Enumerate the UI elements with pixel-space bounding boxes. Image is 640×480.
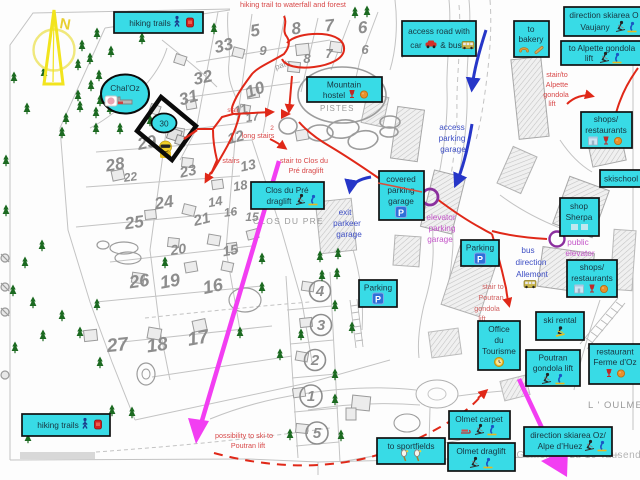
svg-text:stair: stair [227, 108, 238, 114]
svg-text:2: 2 [310, 352, 320, 369]
svg-text:26: 26 [127, 270, 152, 293]
svg-text:direction skiarea Oz/: direction skiarea Oz/ [530, 430, 606, 440]
svg-text:24: 24 [152, 191, 175, 213]
svg-text:restaurants: restaurants [585, 125, 627, 135]
svg-text:Parking: Parking [364, 283, 393, 293]
svg-text:4: 4 [315, 283, 325, 300]
svg-text:hiking trails: hiking trails [37, 420, 79, 430]
svg-text:gondola lift: gondola lift [533, 363, 574, 373]
svg-text:parking: parking [429, 224, 456, 233]
svg-text:hiking trails: hiking trails [129, 18, 171, 28]
svg-text:du: du [494, 335, 504, 345]
svg-text:bus: bus [521, 246, 534, 255]
svg-text:possibility to ski to: possibility to ski to [215, 431, 273, 440]
svg-text:stair to Clos du: stair to Clos du [280, 156, 328, 165]
svg-text:to: to [528, 24, 535, 34]
svg-text:25: 25 [123, 212, 146, 234]
svg-text:garage: garage [427, 235, 453, 244]
svg-text:stair to: stair to [482, 282, 504, 291]
svg-text:garage: garage [388, 196, 414, 206]
svg-text:lift: lift [548, 99, 555, 108]
svg-text:exit: exit [339, 208, 352, 217]
svg-text:covered: covered [386, 174, 416, 184]
svg-text:Mountain: Mountain [327, 80, 362, 90]
svg-text:3: 3 [317, 317, 326, 334]
svg-text:Office: Office [488, 324, 510, 334]
svg-text:PISTES: PISTES [320, 104, 354, 113]
svg-text:garage: garage [440, 145, 466, 154]
svg-text:shops/: shops/ [580, 262, 605, 272]
svg-text:direction skiarea O: direction skiarea O [569, 10, 639, 20]
svg-text:&: & [440, 40, 446, 50]
svg-text:6: 6 [361, 42, 369, 57]
svg-text:elevator: elevator [426, 213, 455, 222]
svg-text:1: 1 [307, 388, 315, 405]
svg-text:Olmet draglift: Olmet draglift [456, 446, 506, 456]
svg-text:ski rental: ski rental [543, 315, 576, 325]
svg-text:Chal’Oz: Chal’Oz [110, 83, 140, 93]
svg-text:parkeer: parkeer [333, 219, 361, 228]
svg-text:skischool: skischool [604, 174, 638, 184]
svg-text:Olmet carpet: Olmet carpet [455, 414, 503, 424]
svg-text:draglift: draglift [267, 196, 293, 206]
svg-text:to Alpette gondola: to Alpette gondola [569, 43, 636, 53]
svg-text:Parking: Parking [466, 243, 495, 253]
svg-text:Sherpa: Sherpa [566, 212, 593, 222]
svg-text:27: 27 [105, 334, 131, 357]
svg-text:Alpe d’Huez: Alpe d’Huez [538, 441, 583, 451]
svg-text:access road with: access road with [408, 26, 470, 36]
svg-text:Ferme d’Oz: Ferme d’Oz [593, 357, 636, 367]
svg-text:long stairs: long stairs [242, 131, 275, 140]
svg-text:elevator: elevator [565, 249, 594, 258]
svg-text:bakery: bakery [519, 34, 545, 44]
svg-text:18: 18 [145, 334, 169, 358]
svg-text:L ' OULME: L ' OULME [588, 400, 640, 411]
svg-text:7: 7 [325, 46, 333, 61]
svg-text:public: public [567, 238, 588, 247]
svg-text:stair/to: stair/to [546, 70, 568, 79]
svg-text:5: 5 [313, 425, 322, 442]
svg-text:Poutran lift: Poutran lift [231, 441, 265, 450]
svg-text:Allemont: Allemont [516, 270, 549, 279]
svg-text:access: access [439, 123, 464, 132]
svg-text:Tourisme: Tourisme [482, 346, 516, 356]
svg-text:9: 9 [259, 43, 267, 58]
svg-text:Vaujany: Vaujany [580, 22, 610, 32]
svg-text:Clos du Pré: Clos du Pré [265, 185, 309, 195]
svg-text:gondola: gondola [543, 90, 569, 99]
svg-text:gondola: gondola [474, 304, 500, 313]
svg-text:restaurant: restaurant [596, 347, 634, 357]
svg-text:shops/: shops/ [594, 114, 619, 124]
svg-text:stairs: stairs [222, 156, 240, 165]
svg-text:20: 20 [168, 240, 187, 258]
svg-text:30: 30 [159, 119, 169, 129]
svg-text:22: 22 [122, 169, 138, 185]
svg-text:shop: shop [570, 201, 588, 211]
svg-text:8: 8 [303, 51, 311, 66]
svg-text:lift: lift [585, 53, 594, 63]
svg-text:16: 16 [223, 204, 238, 220]
svg-text:2: 2 [270, 125, 274, 132]
svg-text:direction: direction [516, 258, 547, 267]
svg-text:15: 15 [221, 241, 239, 259]
svg-text:Alpette: Alpette [546, 80, 568, 89]
svg-text:garage: garage [336, 230, 362, 239]
svg-text:bus: bus [448, 40, 461, 50]
svg-text:Poutran: Poutran [478, 293, 503, 302]
svg-text:Poutran: Poutran [538, 353, 567, 363]
svg-text:6: 6 [357, 18, 368, 38]
svg-text:Pré draglift: Pré draglift [289, 166, 324, 175]
svg-text:car: car [410, 40, 422, 50]
svg-text:hostel: hostel [323, 90, 345, 100]
svg-text:19: 19 [158, 270, 181, 293]
svg-text:to sportfields: to sportfields [387, 441, 434, 451]
svg-text:parking: parking [439, 134, 466, 143]
svg-text:restaurants: restaurants [571, 273, 613, 283]
svg-text:hiking trail to waterfall and: hiking trail to waterfall and forest [240, 0, 346, 9]
